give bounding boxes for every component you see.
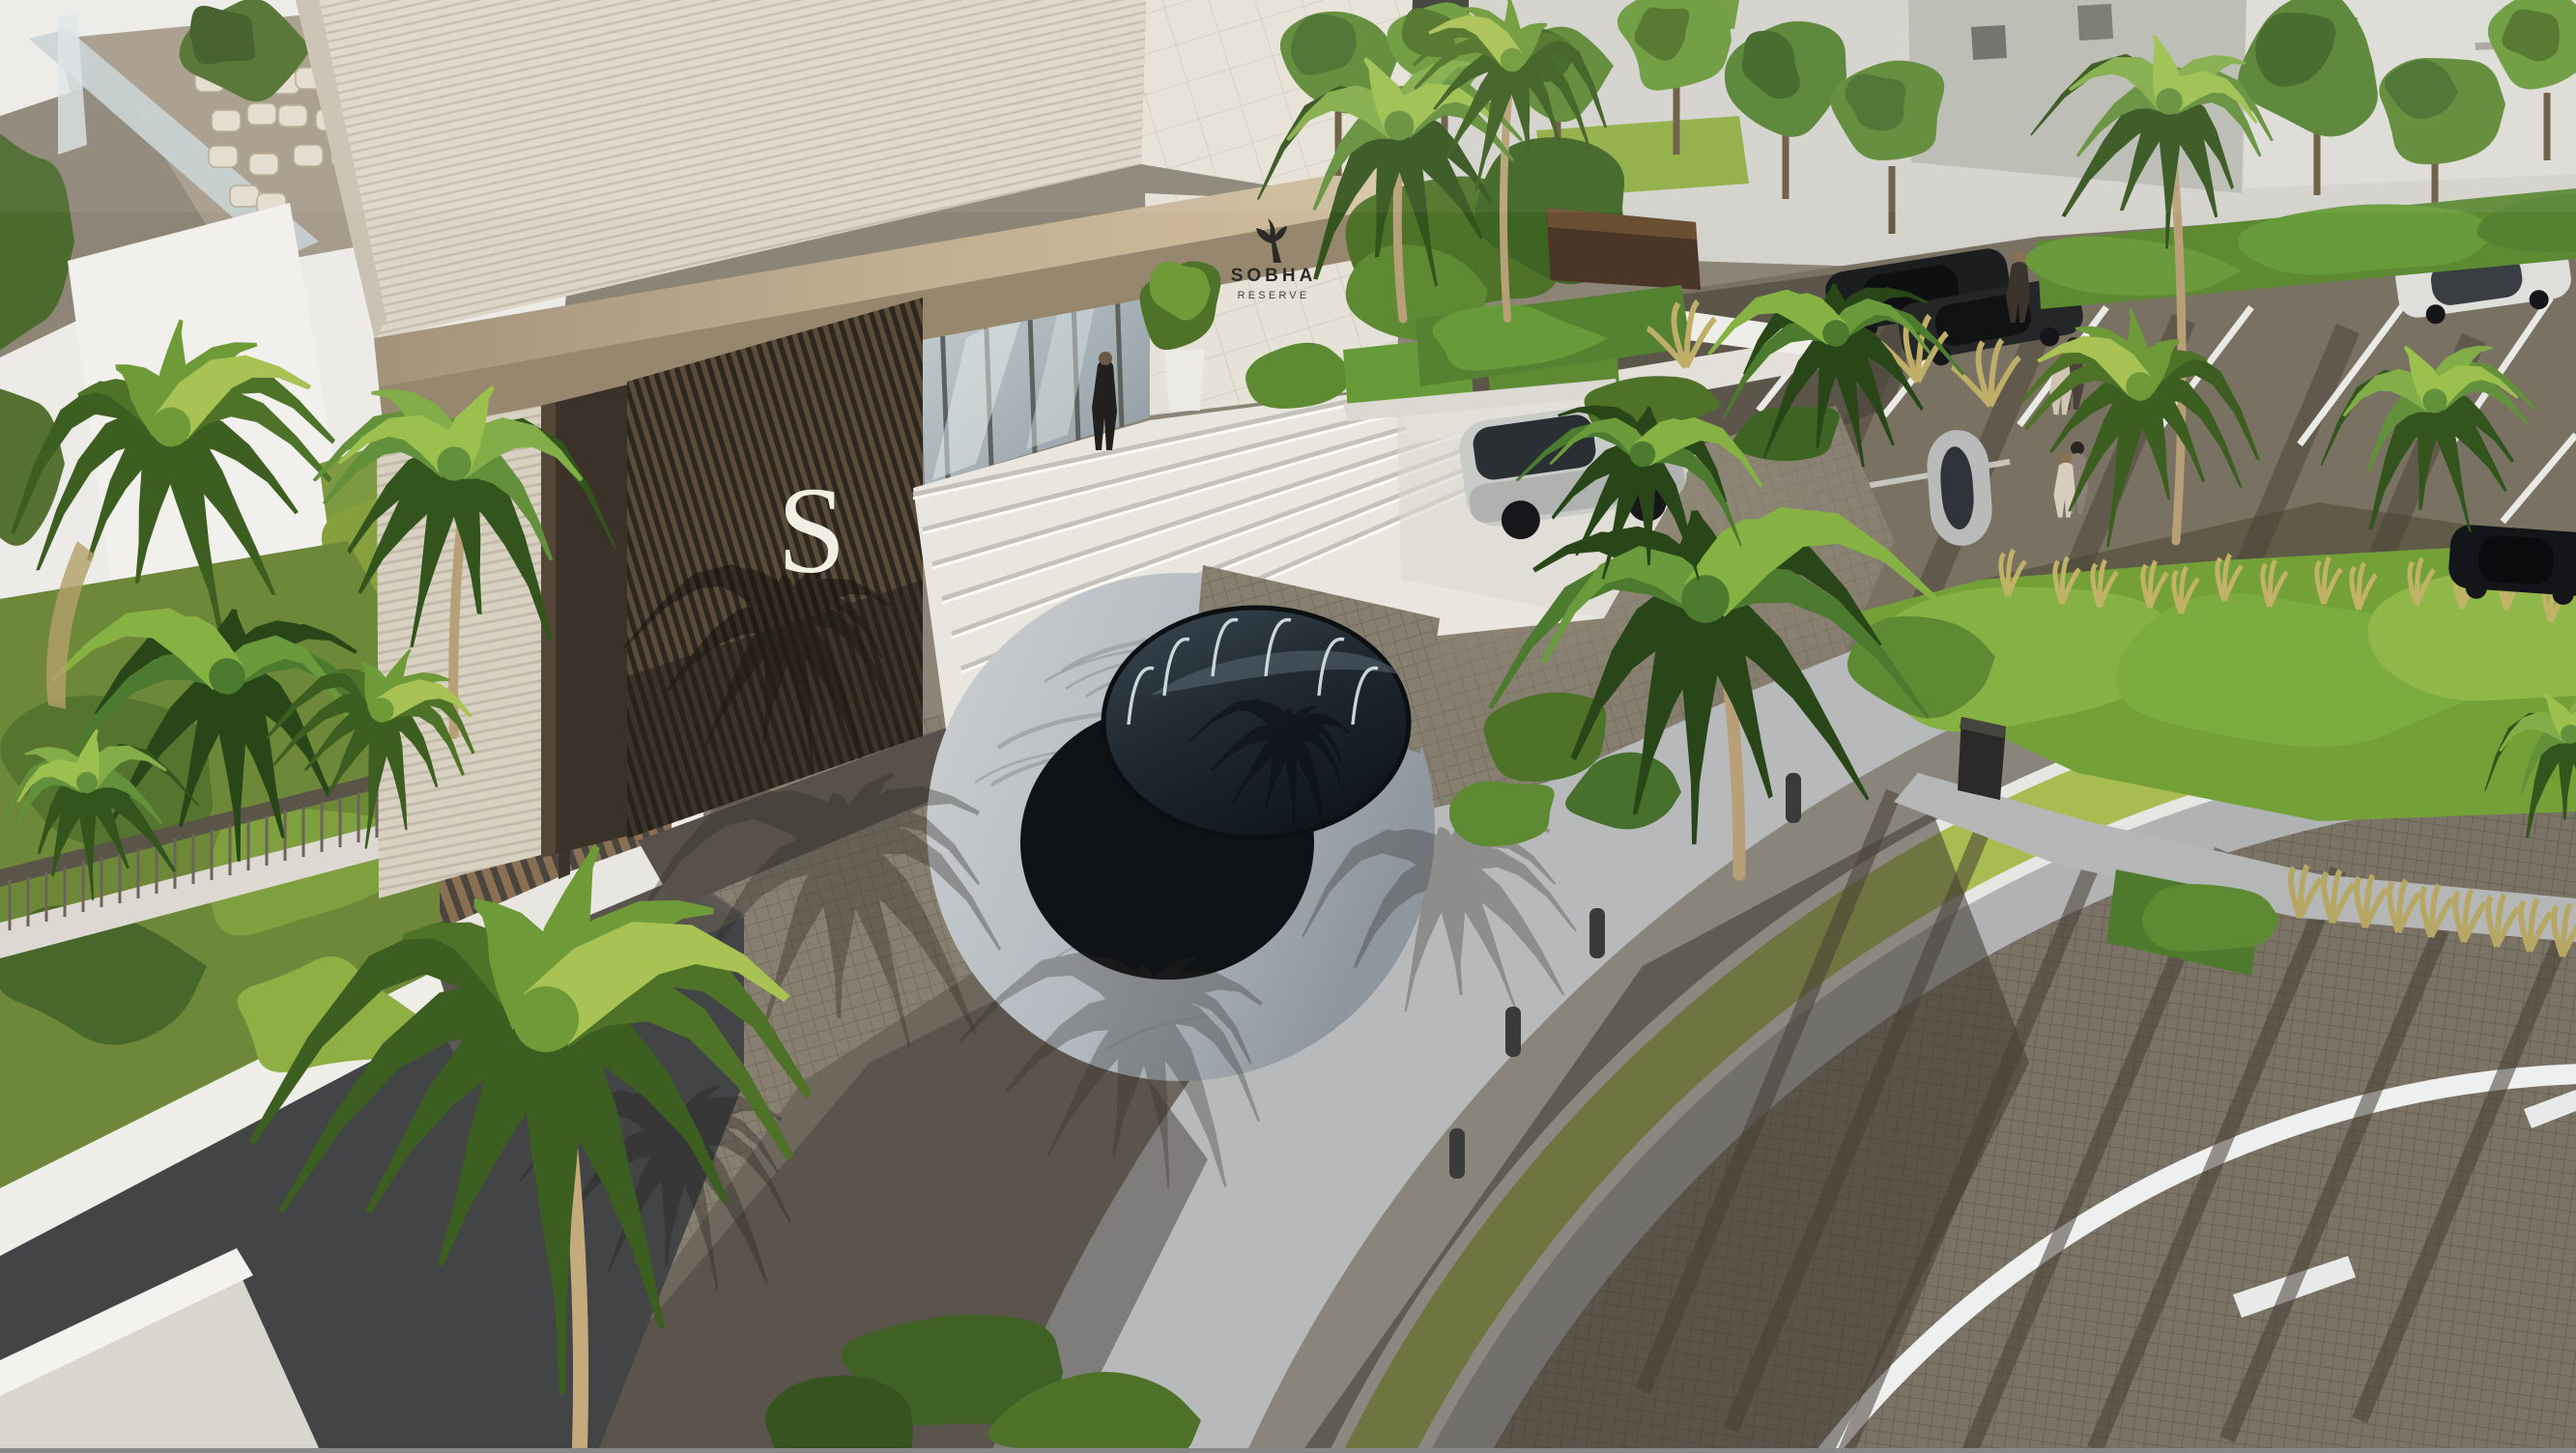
svg-text:RESERVE: RESERVE (1238, 290, 1310, 301)
svg-text:S: S (777, 462, 845, 599)
svg-text:SOBHA: SOBHA (1231, 266, 1317, 286)
